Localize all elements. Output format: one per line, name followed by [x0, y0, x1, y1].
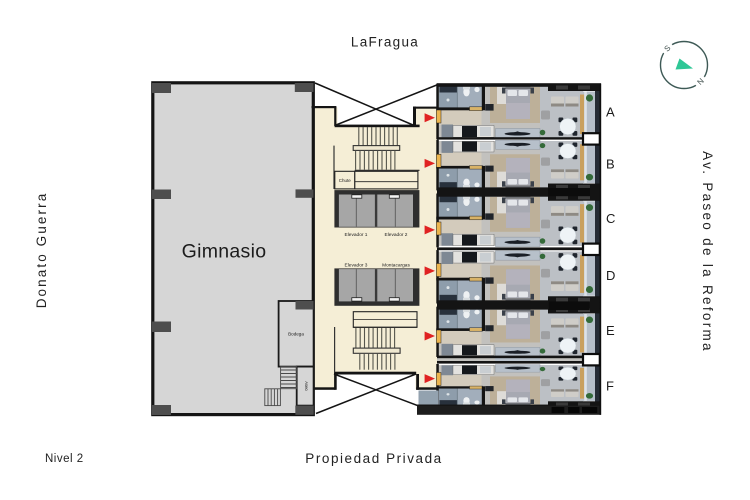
svg-text:Gimnasio: Gimnasio: [182, 241, 267, 263]
svg-text:D: D: [606, 268, 615, 283]
svg-text:A: A: [606, 105, 615, 120]
svg-text:C: C: [606, 211, 615, 226]
svg-text:Donato Guerra: Donato Guerra: [34, 192, 49, 309]
svg-text:F: F: [606, 378, 614, 393]
svg-text:E: E: [606, 323, 615, 338]
svg-text:Chute: Chute: [339, 178, 352, 183]
svg-text:LaFragua: LaFragua: [351, 35, 419, 50]
svg-text:Elevador 2: Elevador 2: [385, 232, 408, 238]
svg-text:Elevador 3: Elevador 3: [345, 263, 368, 269]
svg-text:Nivel 2: Nivel 2: [45, 453, 84, 465]
svg-text:Elevador 1: Elevador 1: [345, 232, 368, 238]
svg-text:Bodega: Bodega: [288, 332, 304, 337]
svg-text:Montacargas: Montacargas: [382, 263, 410, 269]
svg-text:B: B: [606, 156, 615, 171]
svg-text:Av. Paseo de la Reforma: Av. Paseo de la Reforma: [700, 151, 715, 353]
svg-text:Propiedad Privada: Propiedad Privada: [305, 451, 442, 466]
svg-text:Aseo: Aseo: [304, 381, 309, 391]
